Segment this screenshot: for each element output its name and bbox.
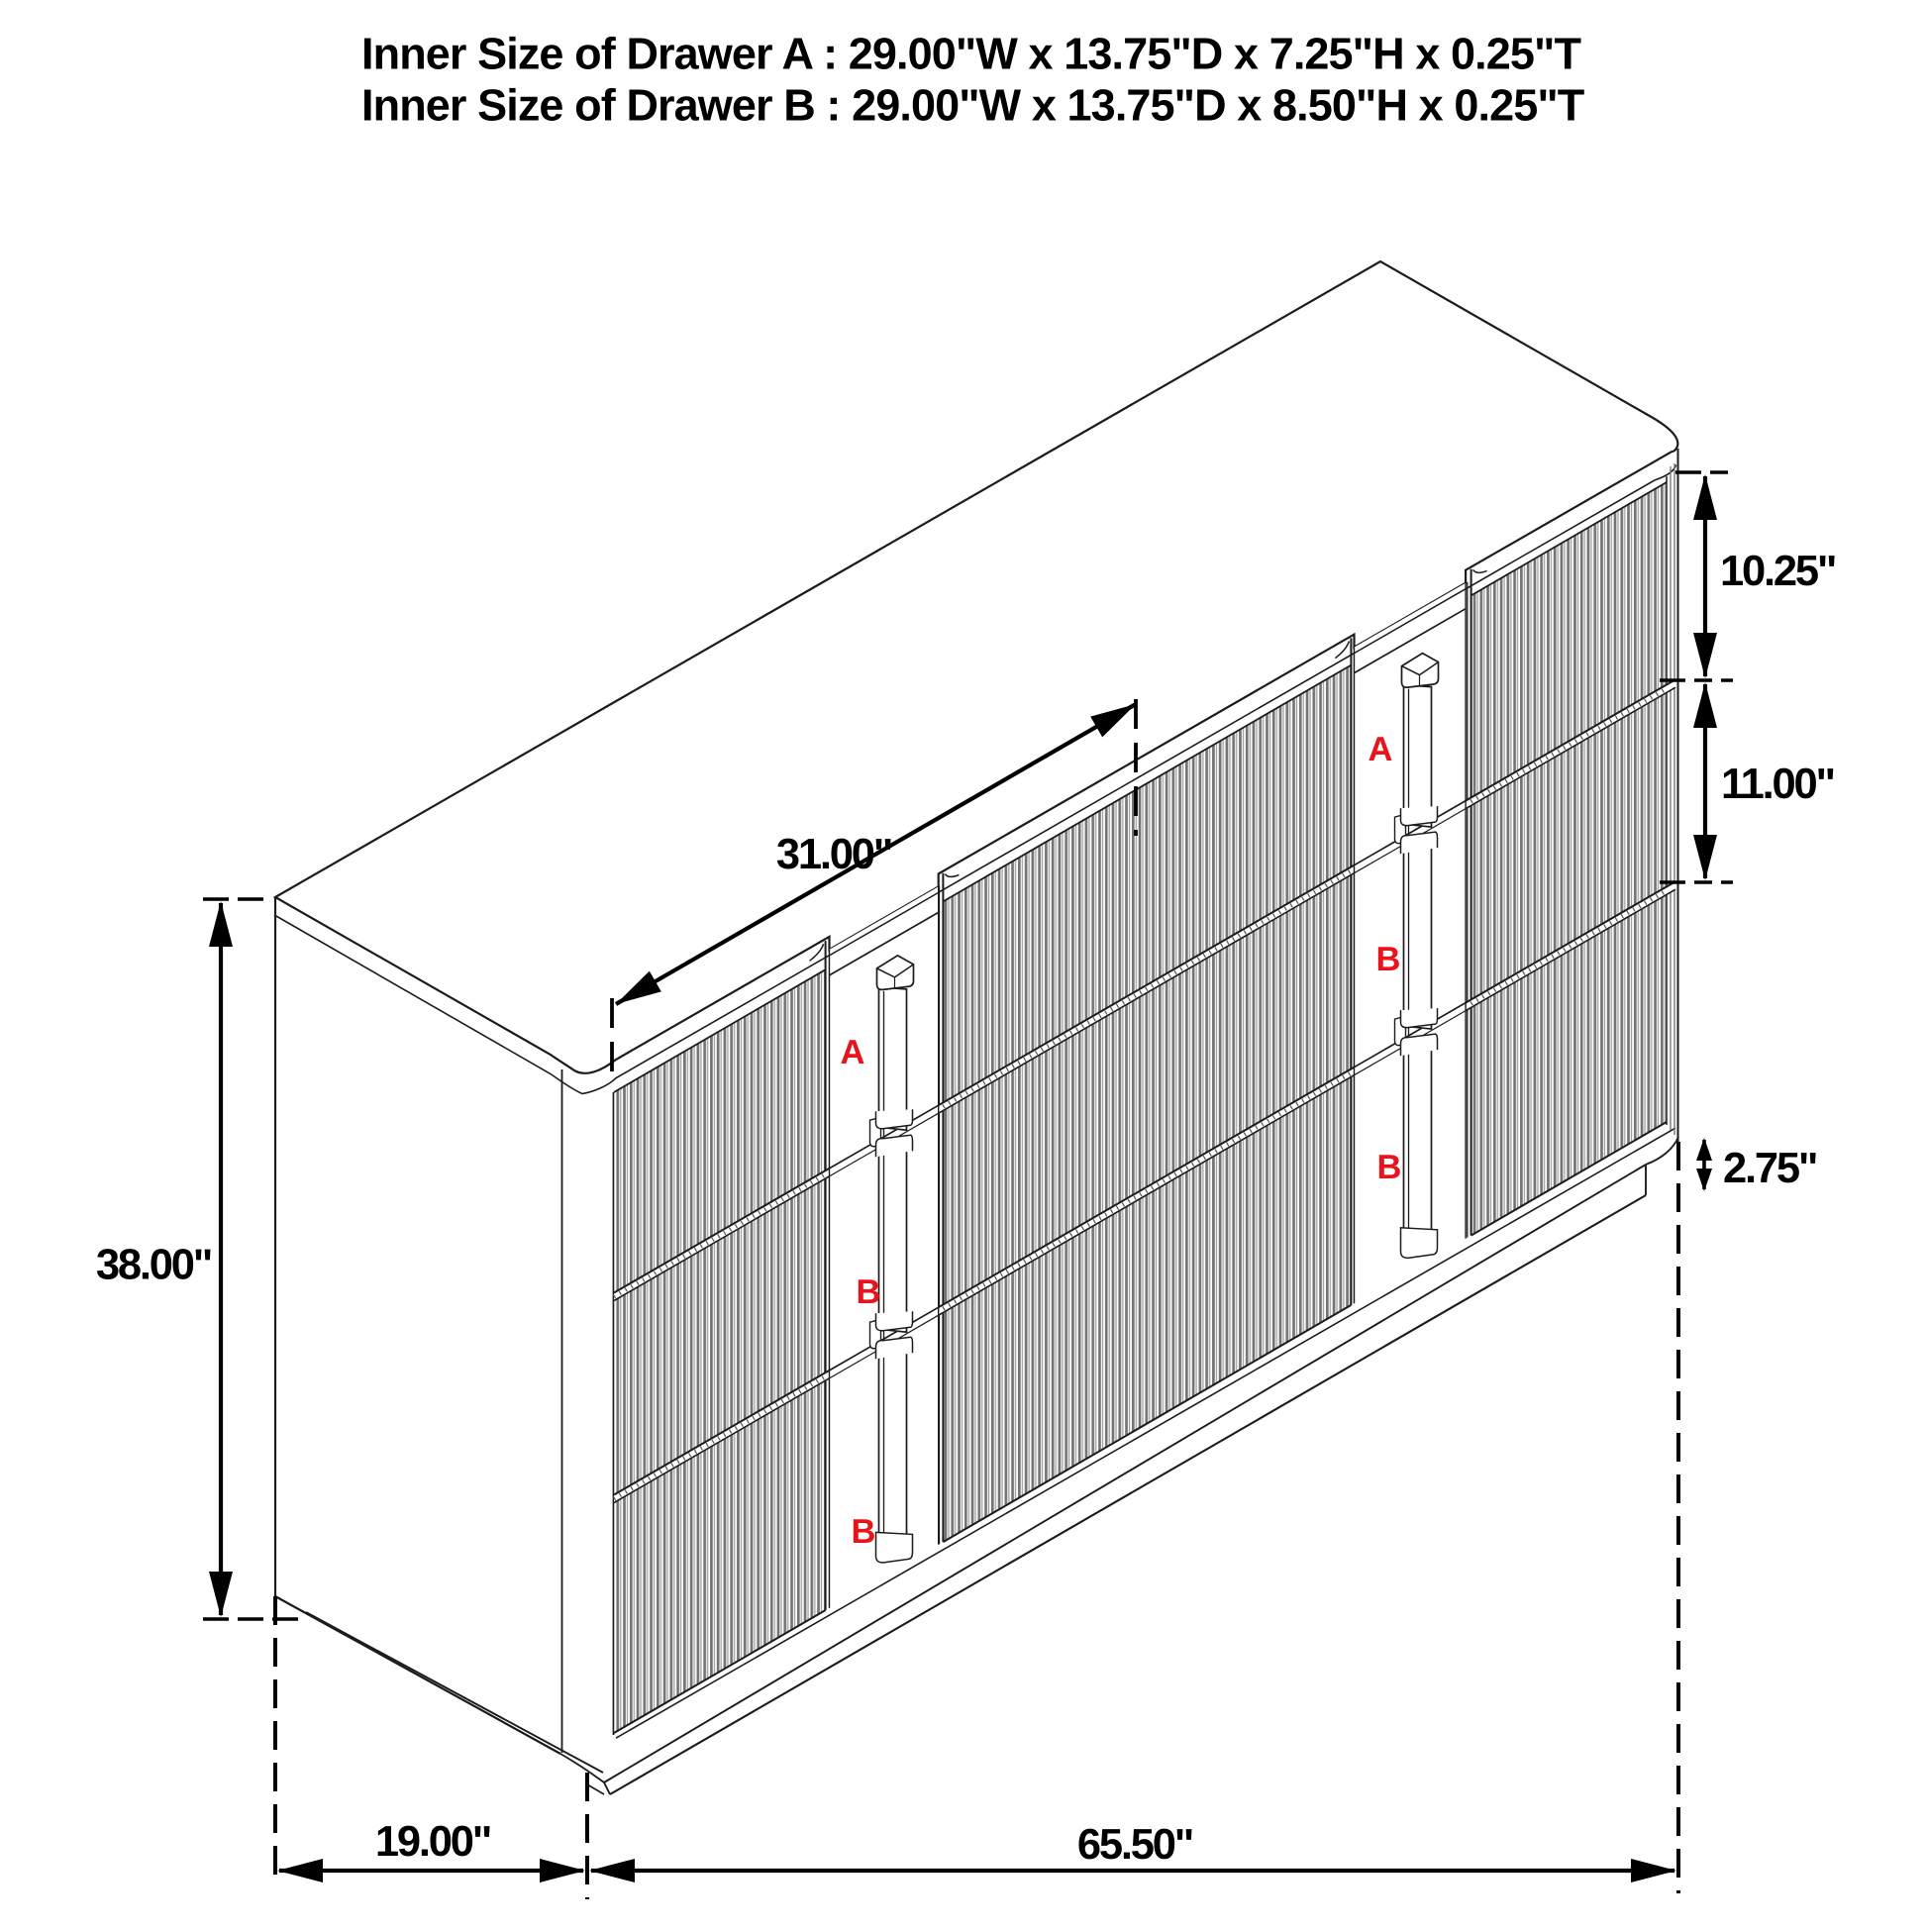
svg-text:Inner Size of Drawer A : 29.00: Inner Size of Drawer A : 29.00"W x 13.75… — [361, 29, 1580, 79]
svg-text:B: B — [1376, 941, 1401, 978]
svg-text:19.00": 19.00" — [375, 1818, 490, 1866]
svg-text:2.75": 2.75" — [1723, 1145, 1816, 1192]
svg-text:38.00": 38.00" — [96, 1242, 211, 1289]
svg-text:A: A — [841, 1034, 865, 1071]
svg-text:11.00": 11.00" — [1721, 761, 1834, 808]
svg-text:Inner Size of Drawer B : 29.00: Inner Size of Drawer B : 29.00"W x 13.75… — [361, 80, 1584, 131]
svg-text:A: A — [1369, 731, 1393, 768]
svg-text:B: B — [852, 1513, 876, 1551]
svg-text:31.00": 31.00" — [776, 831, 891, 878]
svg-text:10.25": 10.25" — [1720, 548, 1835, 595]
svg-text:B: B — [857, 1273, 881, 1311]
svg-text:B: B — [1377, 1149, 1402, 1186]
svg-text:65.50": 65.50" — [1077, 1821, 1192, 1869]
